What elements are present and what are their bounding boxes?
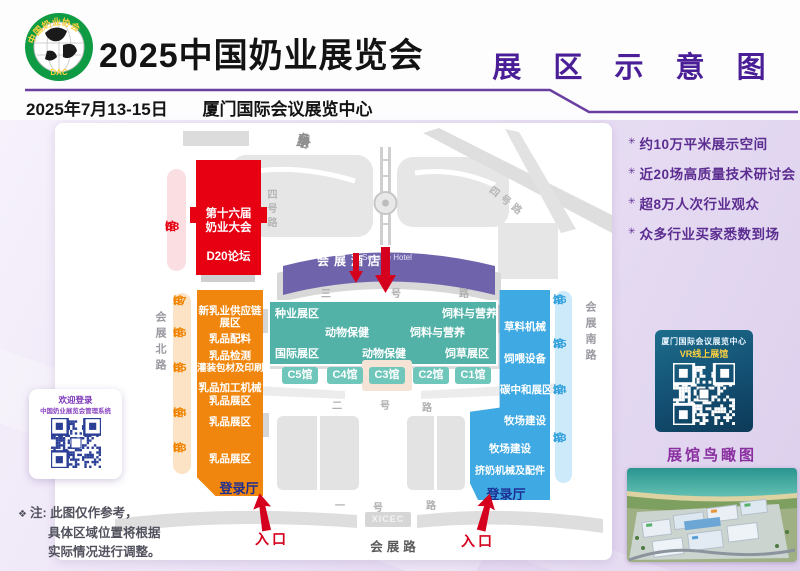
login-qr-panel: 欢迎登录 中国奶业展览会管理系统 bbox=[29, 389, 122, 479]
asterisk-icon: ✳ bbox=[628, 136, 636, 147]
zone-intl: 国际展区 bbox=[275, 345, 319, 361]
exhibition-map: 环 岛 东 路 B8馆 第十六届 奶业大会 D20论坛 四号路 四号路 会展北路… bbox=[55, 123, 612, 560]
road-label-no3: 三 bbox=[321, 285, 331, 300]
a-zone-line: 牧场建设 bbox=[500, 413, 550, 428]
road-label-north: 会展北路 bbox=[152, 311, 168, 375]
zone-seed: 种业展区 bbox=[275, 305, 319, 321]
zone-animal-bottom: 动物保健 bbox=[362, 345, 406, 361]
header: 中国奶业协会 DAC 2025中国奶业展览会 展 区 示 意 图 2025年7月… bbox=[0, 0, 800, 120]
road-label-no2: 二 bbox=[332, 397, 342, 412]
road-label-no3: 路 bbox=[459, 285, 469, 300]
highlight-item: ✳约10万平米展示空间 bbox=[628, 133, 798, 153]
road-label-no1: 一 bbox=[335, 497, 345, 512]
header-divider bbox=[0, 0, 800, 120]
hall-pill-c5: C5馆 bbox=[282, 367, 318, 384]
b-zone-line: 灌装包材及印刷 bbox=[197, 360, 263, 374]
venue-aerial-photo bbox=[627, 468, 797, 562]
aerial-view-label: 展馆鸟瞰图 bbox=[627, 444, 797, 465]
hall-pill-c1: C1馆 bbox=[455, 367, 491, 384]
entrance-label-left: 入口 bbox=[255, 529, 289, 549]
highlights-list: ✳约10万平米展示空间 ✳近20场高质量技术研讨会 ✳超8万人次行业观众 ✳众多… bbox=[628, 133, 798, 243]
vr-qr-code bbox=[655, 363, 753, 430]
d20-forum-label: D20论坛 bbox=[196, 248, 261, 264]
hall-strip-a: A6馆 A5馆 A4馆 A3馆 bbox=[555, 291, 572, 483]
hall-pill-c3: C3馆 bbox=[369, 367, 405, 384]
hall-block-c: 种业展区 饲料与营养 动物保健 饲料与营养 国际展区 动物保健 饲草展区 bbox=[268, 300, 498, 366]
dairy-conference-block: 第十六届 奶业大会 D20论坛 bbox=[196, 160, 261, 275]
b-zone-line: 乳品展区 bbox=[197, 414, 263, 429]
login-qr-code bbox=[29, 418, 122, 473]
b-zone-line: 乳品展区 bbox=[197, 451, 263, 466]
entrance-label-right: 入口 bbox=[461, 531, 495, 551]
vr-qr-subtitle: VR线上展馆 bbox=[655, 347, 753, 360]
hall-block-b: 新乳业供应链 展区 乳品配料 乳品检测 灌装包材及印刷 乳品加工机械 乳品展区 … bbox=[197, 290, 263, 496]
footnote: ❖注: 此图仅作参考， 具体区域位置将根据 实际情况进行调整。 bbox=[18, 504, 168, 562]
entry-arrow-down-small bbox=[348, 253, 364, 285]
asterisk-icon: ✳ bbox=[628, 196, 636, 207]
zone-forage: 饲草展区 bbox=[445, 345, 489, 361]
asterisk-icon: ✳ bbox=[628, 226, 636, 237]
road-label-expo: 会展路 bbox=[345, 536, 445, 555]
vr-qr-panel: 厦门国际会议展览中心 VR线上展馆 bbox=[655, 330, 753, 432]
asterisk-icon: ✳ bbox=[628, 166, 636, 177]
road-label-south: 会展南路 bbox=[582, 301, 598, 365]
road-label-no2: 路 bbox=[422, 399, 432, 414]
road-label-no4-left: 四号路 bbox=[263, 189, 278, 231]
diamond-icon: ❖ bbox=[18, 509, 27, 520]
xicec-label: XICEC bbox=[365, 512, 411, 527]
b-zone-line: 乳品配料 bbox=[197, 331, 263, 346]
conference-line2: 奶业大会 bbox=[196, 219, 261, 235]
a-zone-line: 碳中和展区 bbox=[500, 382, 550, 397]
a-zone-line: 牧场建设 bbox=[470, 441, 550, 456]
hall-strip-b8 bbox=[167, 169, 186, 271]
highlight-item: ✳超8万人次行业观众 bbox=[628, 193, 798, 213]
b-zone-line: 乳品展区 bbox=[197, 393, 263, 408]
hall-strip-b: B7馆 B6馆 B5馆 B4馆 B3馆 bbox=[173, 293, 191, 474]
b-zone-line: 展区 bbox=[197, 315, 263, 330]
a-zone-line: 挤奶机械及配件 bbox=[470, 462, 550, 477]
a-zone-line: 饲喂设备 bbox=[500, 351, 550, 366]
login-qr-subtitle: 中国奶业展览会管理系统 bbox=[33, 406, 119, 415]
road-label-no2: 号 bbox=[380, 397, 390, 412]
login-qr-title: 欢迎登录 bbox=[29, 394, 122, 406]
hall-pill-c2: C2馆 bbox=[413, 367, 449, 384]
zone-feed-mid: 饲料与营养 bbox=[410, 324, 465, 340]
a-zone-line: 草料机械 bbox=[500, 319, 550, 334]
zone-animal-mid: 动物保健 bbox=[325, 324, 369, 340]
zone-feed-top: 饲料与营养 bbox=[442, 305, 497, 321]
highlight-item: ✳近20场高质量技术研讨会 bbox=[628, 163, 798, 183]
highlight-item: ✳众多行业买家悉数到场 bbox=[628, 223, 798, 243]
entry-arrow-down-large bbox=[375, 247, 397, 295]
vr-qr-title: 厦门国际会议展览中心 bbox=[655, 336, 753, 347]
road-label-no1: 路 bbox=[426, 497, 436, 512]
hall-pill-c4: C4馆 bbox=[327, 367, 363, 384]
